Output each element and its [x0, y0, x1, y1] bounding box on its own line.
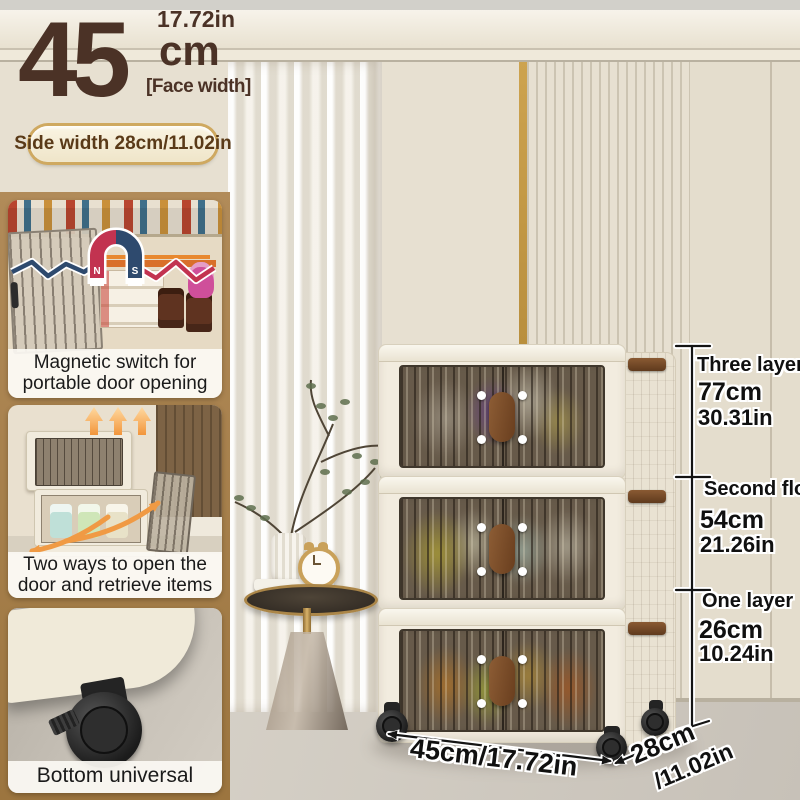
- cabinet-unit-bottom: [378, 608, 626, 743]
- side-handle: [628, 622, 666, 635]
- side-handle: [628, 490, 666, 503]
- door-handle: [489, 524, 515, 574]
- unit-window: [399, 365, 605, 468]
- face-width-label: [Face width]: [146, 76, 251, 98]
- caster-wheel-large: [66, 692, 142, 768]
- alarm-clock: [298, 547, 340, 589]
- clock-bell: [304, 542, 314, 550]
- door-handle: [489, 656, 515, 706]
- caster-wheel: [596, 732, 627, 763]
- value-77cm: 77cm: [698, 378, 762, 407]
- feature-caption: Magnetic switch for portable door openin…: [8, 349, 222, 398]
- svg-text:N: N: [93, 266, 100, 277]
- unit-lid: [379, 477, 625, 494]
- cabinet-front: [378, 344, 624, 744]
- value-10in: 10.24in: [699, 641, 774, 667]
- storage-cabinet-product-image: Three layers 77cm 30.31in Second floor 5…: [0, 0, 800, 800]
- side-table-stem: [303, 608, 311, 634]
- face-width-value: 45: [18, 6, 125, 113]
- feature-caption: Two ways to open the door and retrieve i…: [8, 552, 222, 598]
- side-width-badge: Side width 28cm/11.02in: [30, 126, 216, 162]
- unit-window: [399, 629, 605, 732]
- up-arrow-icon: [85, 407, 151, 435]
- face-width-unit: cm: [159, 27, 220, 75]
- cabinet-unit-middle: [378, 476, 626, 611]
- unit-window: [399, 497, 605, 600]
- value-54cm: 54cm: [700, 506, 764, 535]
- feature-card-magnetic: N S Magnetic switch for portable door op…: [8, 200, 222, 398]
- feature-card-two-ways: Two ways to open the door and retrieve i…: [8, 405, 222, 598]
- side-handle: [628, 358, 666, 371]
- feature-caption: Bottom universal pulley: [8, 761, 222, 793]
- cabinet-unit-top: [378, 344, 626, 479]
- unit-lid: [379, 345, 625, 362]
- magnet-icon: N S: [8, 206, 222, 302]
- unit-lid: [379, 609, 625, 626]
- value-21in: 21.26in: [700, 532, 775, 558]
- label-three-layers: Three layers: [697, 354, 800, 377]
- caster-wheel: [376, 710, 408, 742]
- open-direction-arrows: [8, 405, 222, 554]
- feature-card-pulley: Bottom universal pulley: [8, 608, 222, 793]
- door-handle: [489, 392, 515, 442]
- side-table-top: [244, 584, 378, 616]
- label-second-floor: Second floor: [704, 478, 800, 501]
- clock-bell: [318, 542, 328, 550]
- feature-panel: N S Magnetic switch for portable door op…: [0, 192, 230, 800]
- label-one-layer: One layer: [702, 590, 793, 613]
- svg-text:S: S: [132, 266, 139, 277]
- value-30in: 30.31in: [698, 405, 773, 431]
